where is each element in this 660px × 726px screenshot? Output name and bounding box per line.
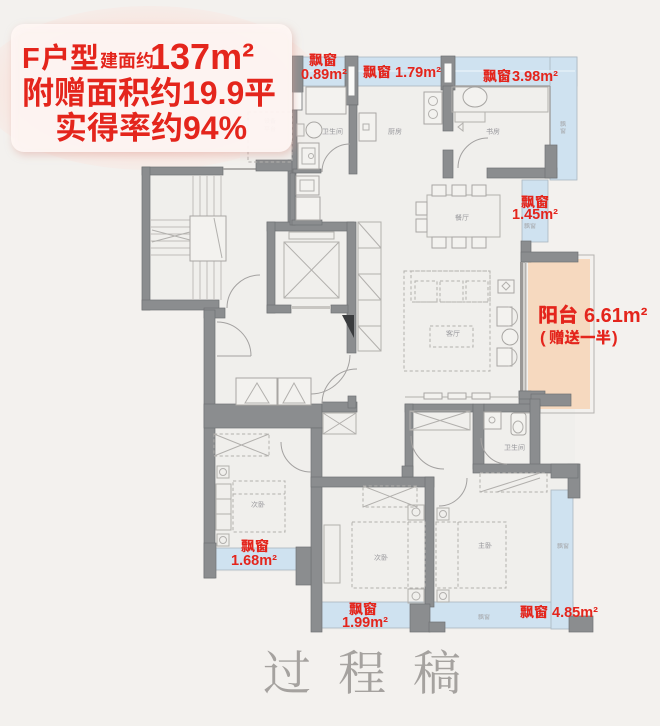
svg-text:94%: 94% [183,110,247,146]
svg-text:4.85m²: 4.85m² [552,605,598,621]
svg-text:1.79m²: 1.79m² [395,65,441,81]
svg-text:137m²: 137m² [150,36,254,77]
svg-text:F: F [22,43,40,75]
svg-text:1.99m²: 1.99m² [342,615,388,631]
svg-text:1.68m²: 1.68m² [231,553,277,569]
svg-text:0.89m²: 0.89m² [301,67,347,83]
svg-text:3.98m²: 3.98m² [512,69,558,85]
svg-text:1.45m²: 1.45m² [512,207,558,223]
svg-text:19.9: 19.9 [182,75,244,111]
svg-text:6.61m²: 6.61m² [584,305,648,327]
svg-text:(: ( [540,328,546,347]
svg-text:): ) [612,328,618,347]
